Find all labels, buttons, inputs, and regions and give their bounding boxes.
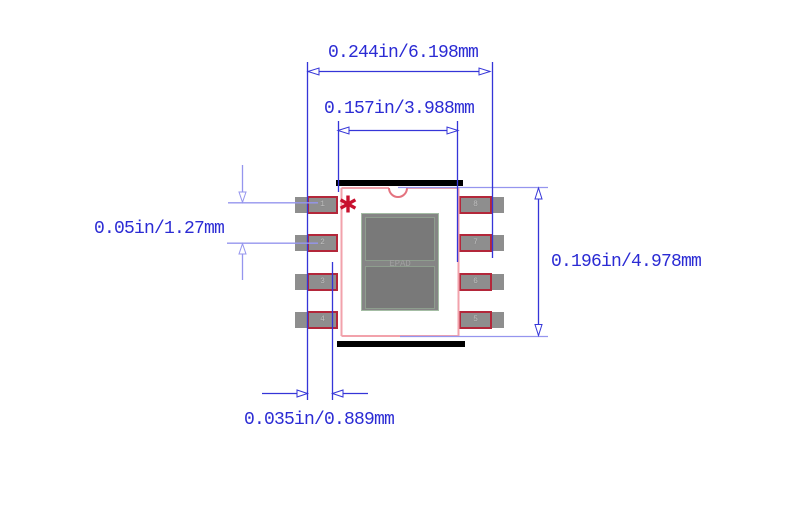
exposed-pad-bottom-region bbox=[365, 266, 435, 309]
arrowhead-up-icon bbox=[535, 188, 542, 199]
pin-number-2: 2 bbox=[320, 239, 325, 247]
arrowhead-right-icon bbox=[297, 390, 308, 397]
pin1-orientation-notch-icon bbox=[389, 188, 407, 197]
arrowhead-up-icon bbox=[239, 244, 246, 254]
exposed-pad-label: EPAD bbox=[362, 259, 438, 269]
pad-pin-5-outline: 5 bbox=[459, 311, 492, 329]
exposed-pad: EPAD bbox=[361, 213, 439, 311]
pad-pin-8-outline: 8 bbox=[459, 196, 492, 214]
dimension-line-pad-offset bbox=[262, 390, 368, 397]
arrowhead-down-icon bbox=[239, 192, 246, 202]
arrowhead-down-icon bbox=[535, 325, 542, 336]
pad-pin-5: 5 bbox=[459, 312, 504, 328]
arrowhead-left-icon bbox=[338, 127, 349, 134]
pad-pin-4-outline: 4 bbox=[307, 311, 338, 329]
pad-pin-8: 8 bbox=[459, 197, 504, 213]
pad-pin-1: 1 bbox=[295, 197, 338, 213]
dimension-line-body-height bbox=[535, 188, 542, 336]
pad-pin-6: 6 bbox=[459, 274, 504, 290]
pin-number-7: 7 bbox=[473, 239, 478, 247]
dimension-label-pad-offset: 0.035in/0.889mm bbox=[244, 410, 394, 430]
arrowhead-left-icon bbox=[333, 390, 344, 397]
pin1-marker-icon bbox=[341, 196, 356, 213]
top-solder-bar bbox=[336, 180, 463, 186]
dimension-line-pin-pitch bbox=[227, 165, 318, 280]
pad-pin-4: 4 bbox=[295, 312, 338, 328]
package-footprint-drawing: EPAD 1 2 3 4 8 7 6 5 bbox=[0, 0, 800, 529]
pad-pin-3-outline: 3 bbox=[307, 273, 338, 291]
pad-pin-3: 3 bbox=[295, 274, 338, 290]
arrowhead-left-icon bbox=[308, 68, 319, 75]
dimension-label-body-height: 0.196in/4.978mm bbox=[551, 252, 701, 272]
pin-number-6: 6 bbox=[473, 278, 478, 286]
pin-number-1: 1 bbox=[320, 201, 325, 209]
pad-pin-2: 2 bbox=[295, 235, 338, 251]
pad-pin-2-outline: 2 bbox=[307, 234, 338, 252]
pad-pin-7: 7 bbox=[459, 235, 504, 251]
bottom-solder-bar bbox=[337, 341, 465, 347]
arrowhead-right-icon bbox=[447, 127, 458, 134]
pin-number-4: 4 bbox=[320, 316, 325, 324]
exposed-pad-top-region bbox=[365, 217, 435, 261]
dimension-label-overall-width: 0.244in/6.198mm bbox=[324, 43, 482, 63]
dimension-line-overall-width bbox=[308, 68, 490, 75]
pin-number-8: 8 bbox=[473, 201, 478, 209]
pad-pin-6-outline: 6 bbox=[459, 273, 492, 291]
dimension-label-body-width: 0.157in/3.988mm bbox=[320, 99, 478, 119]
dimension-line-body-width bbox=[338, 127, 458, 134]
pad-pin-1-outline: 1 bbox=[307, 196, 338, 214]
arrowhead-right-icon bbox=[479, 68, 490, 75]
pin-number-5: 5 bbox=[473, 316, 478, 324]
pad-pin-7-outline: 7 bbox=[459, 234, 492, 252]
dimension-label-pin-pitch: 0.05in/1.27mm bbox=[94, 219, 224, 239]
pin-number-3: 3 bbox=[320, 278, 325, 286]
